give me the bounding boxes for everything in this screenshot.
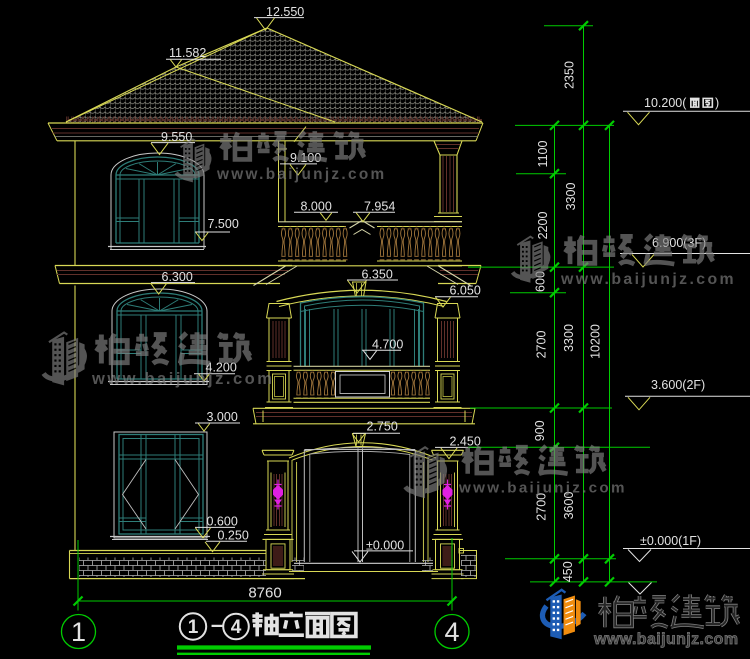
svg-text:7.500: 7.500 xyxy=(208,217,239,231)
svg-text:4.700: 4.700 xyxy=(372,338,403,352)
svg-text:3300: 3300 xyxy=(562,324,576,352)
svg-text:4: 4 xyxy=(231,617,242,638)
svg-text:3300: 3300 xyxy=(564,183,578,211)
svg-text:10.200(: 10.200( xyxy=(644,96,687,110)
svg-text:0.250: 0.250 xyxy=(218,529,249,543)
svg-text:2.750: 2.750 xyxy=(367,420,398,434)
svg-text:900: 900 xyxy=(533,420,547,441)
svg-text:4: 4 xyxy=(444,617,459,647)
svg-text:8760: 8760 xyxy=(248,585,281,602)
svg-text:7.954: 7.954 xyxy=(364,200,395,214)
svg-text:2700: 2700 xyxy=(535,493,549,521)
svg-text:www.baijunjz.com: www.baijunjz.com xyxy=(216,166,387,183)
svg-text:2.450: 2.450 xyxy=(450,435,481,449)
svg-text:1: 1 xyxy=(188,617,199,638)
svg-text:www.baijunjz.com: www.baijunjz.com xyxy=(458,480,627,497)
svg-text:2200: 2200 xyxy=(536,212,550,240)
svg-text:6.050: 6.050 xyxy=(450,284,481,298)
svg-text:3.000: 3.000 xyxy=(207,410,238,424)
svg-text:–: – xyxy=(211,612,223,637)
svg-text:1: 1 xyxy=(71,617,86,647)
svg-text:±0.000: ±0.000 xyxy=(366,538,404,552)
svg-text:6.350: 6.350 xyxy=(362,268,393,282)
svg-text:11.582: 11.582 xyxy=(169,46,206,60)
svg-text:6.300: 6.300 xyxy=(162,270,193,284)
svg-text:10200: 10200 xyxy=(589,324,603,359)
svg-text:1100: 1100 xyxy=(536,141,550,168)
svg-text:0.600: 0.600 xyxy=(207,515,238,529)
svg-text:3.600(2F): 3.600(2F) xyxy=(651,378,705,392)
svg-text:±0.000(1F): ±0.000(1F) xyxy=(640,534,701,548)
svg-text:12.550: 12.550 xyxy=(266,5,304,19)
svg-text:2700: 2700 xyxy=(535,331,549,359)
svg-text:8.000: 8.000 xyxy=(301,200,332,214)
svg-text:www.baijunjz.com: www.baijunjz.com xyxy=(91,370,274,388)
svg-text:www.baijunjz.com: www.baijunjz.com xyxy=(560,271,736,288)
svg-text:www.baijunjz.com: www.baijunjz.com xyxy=(593,631,739,648)
svg-text:450: 450 xyxy=(561,561,575,582)
svg-text:): ) xyxy=(715,96,719,110)
svg-text:2350: 2350 xyxy=(563,61,577,89)
